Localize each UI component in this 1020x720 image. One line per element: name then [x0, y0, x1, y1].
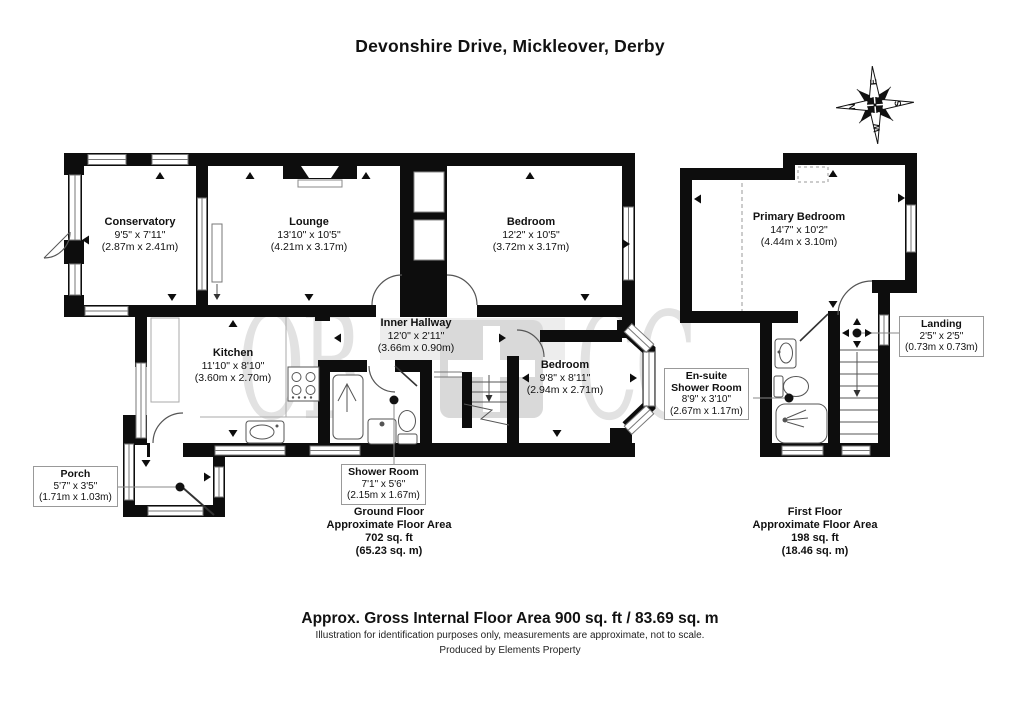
- room-label-bedroom-front: Bedroom 12'2" x 10'5" (3.72m x 3.17m): [493, 216, 569, 254]
- patio-door-leaf: [212, 224, 222, 282]
- callout-ensuite: En-suite Shower Room 8'9" x 3'10" (2.67m…: [664, 368, 749, 420]
- compass-n: N: [847, 103, 857, 110]
- disclaimer-text: Illustration for identification purposes…: [0, 630, 1020, 641]
- shower-room-fixtures: [333, 375, 417, 444]
- hearth: [298, 180, 342, 187]
- callout-landing: Landing 2'5" x 2'5" (0.73m x 0.73m): [899, 316, 984, 357]
- room-label-inner-hallway: Inner Hallway 12'0" x 2'11" (3.66m x 0.9…: [378, 317, 454, 355]
- landing-leader-dot: [853, 329, 862, 338]
- ground-floor-area-summary: Ground Floor Approximate Floor Area 702 …: [327, 506, 452, 558]
- porch-leader-dot: [176, 483, 185, 492]
- ground-floor-plan: [44, 153, 655, 517]
- callout-shower-room: Shower Room 7'1" x 5'6" (2.15m x 1.67m): [341, 464, 426, 505]
- compass-e: E: [868, 79, 878, 86]
- room-label-lounge: Lounge 13'10" x 10'5" (4.21m x 3.17m): [271, 216, 347, 254]
- page-title: Devonshire Drive, Mickleover, Derby: [0, 36, 1020, 57]
- ground-floor-walls: [64, 153, 635, 517]
- ensuite-leader-dot: [785, 394, 794, 403]
- compass-s: S: [893, 100, 903, 107]
- ensuite-door-leaf: [800, 314, 828, 341]
- room-label-bedroom-rear: Bedroom 9'8" x 8'11" (2.94m x 2.71m): [527, 359, 603, 397]
- room-label-conservatory: Conservatory 9'5" x 7'11" (2.87m x 2.41m…: [102, 216, 178, 254]
- shower-leader-dot: [390, 396, 399, 405]
- compass-w: W: [871, 123, 882, 133]
- callout-porch: Porch 5'7" x 3'5" (1.71m x 1.03m): [33, 466, 118, 507]
- cupboard-doors: [434, 372, 462, 377]
- floorplan-page: OB CC: [0, 0, 1020, 720]
- kitchen-sink: [246, 421, 284, 443]
- credit-text: Produced by Elements Property: [0, 645, 1020, 656]
- hob: [288, 367, 319, 401]
- first-floor-area-summary: First Floor Approximate Floor Area 198 s…: [753, 506, 878, 558]
- gross-area-summary: Approx. Gross Internal Floor Area 900 sq…: [0, 610, 1020, 628]
- ensuite-fixtures: [774, 339, 827, 443]
- room-label-kitchen: Kitchen 11'10" x 8'10" (3.60m x 2.70m): [195, 347, 271, 385]
- compass-rose: N E S W: [833, 63, 916, 146]
- bedroom-landing-door: [838, 281, 872, 315]
- room-label-primary-bedroom: Primary Bedroom 14'7" x 10'2" (4.44m x 3…: [753, 211, 845, 249]
